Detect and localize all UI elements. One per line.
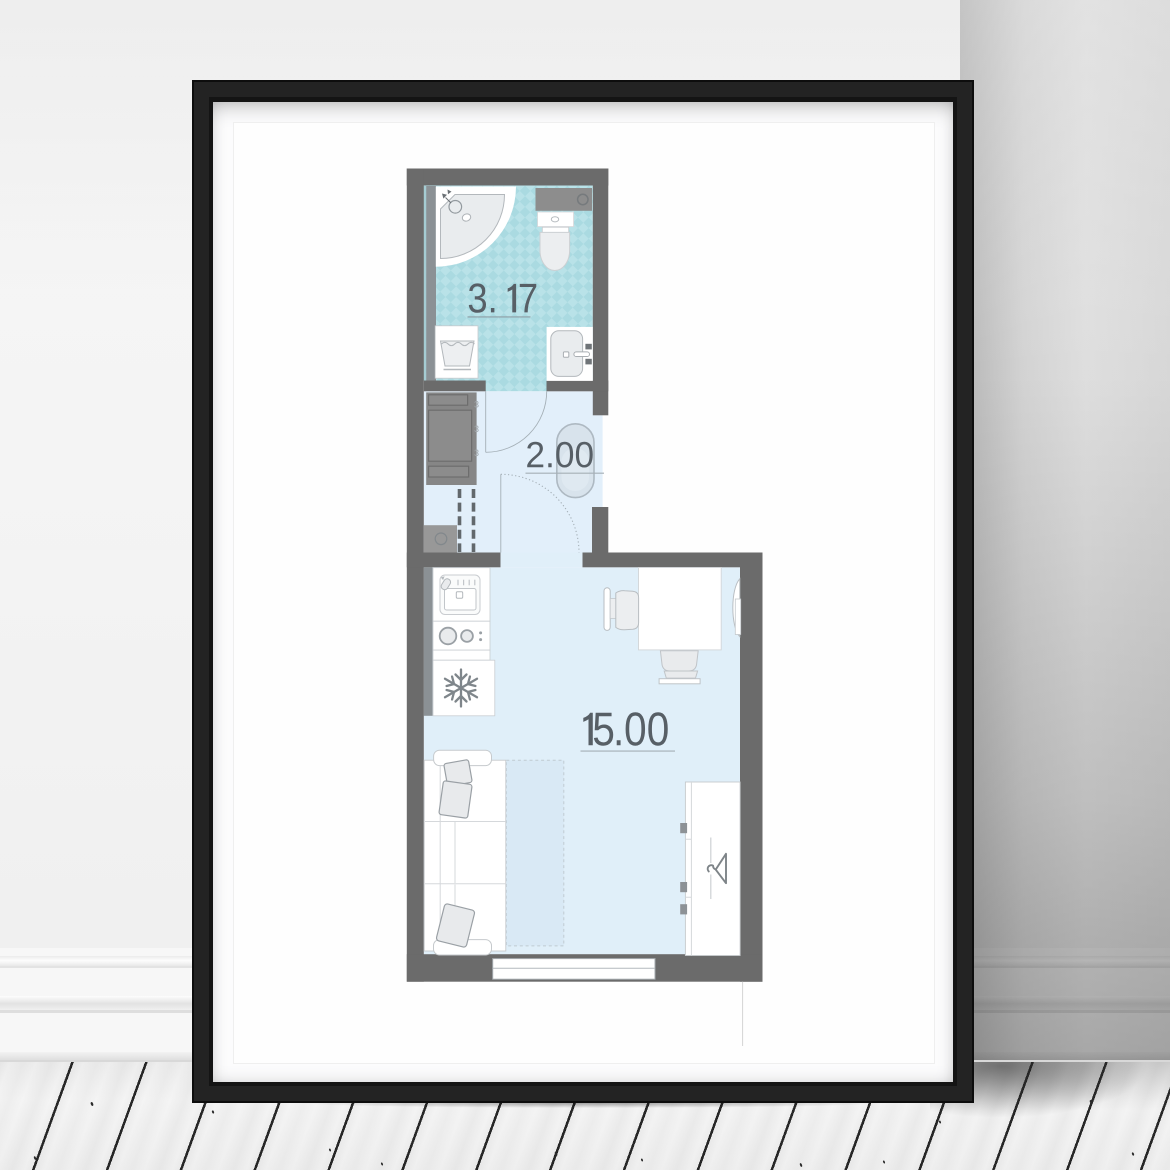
- svg-text:3: 3: [474, 400, 479, 410]
- svg-text:3: 3: [474, 424, 479, 434]
- svg-text:3: 3: [474, 448, 479, 458]
